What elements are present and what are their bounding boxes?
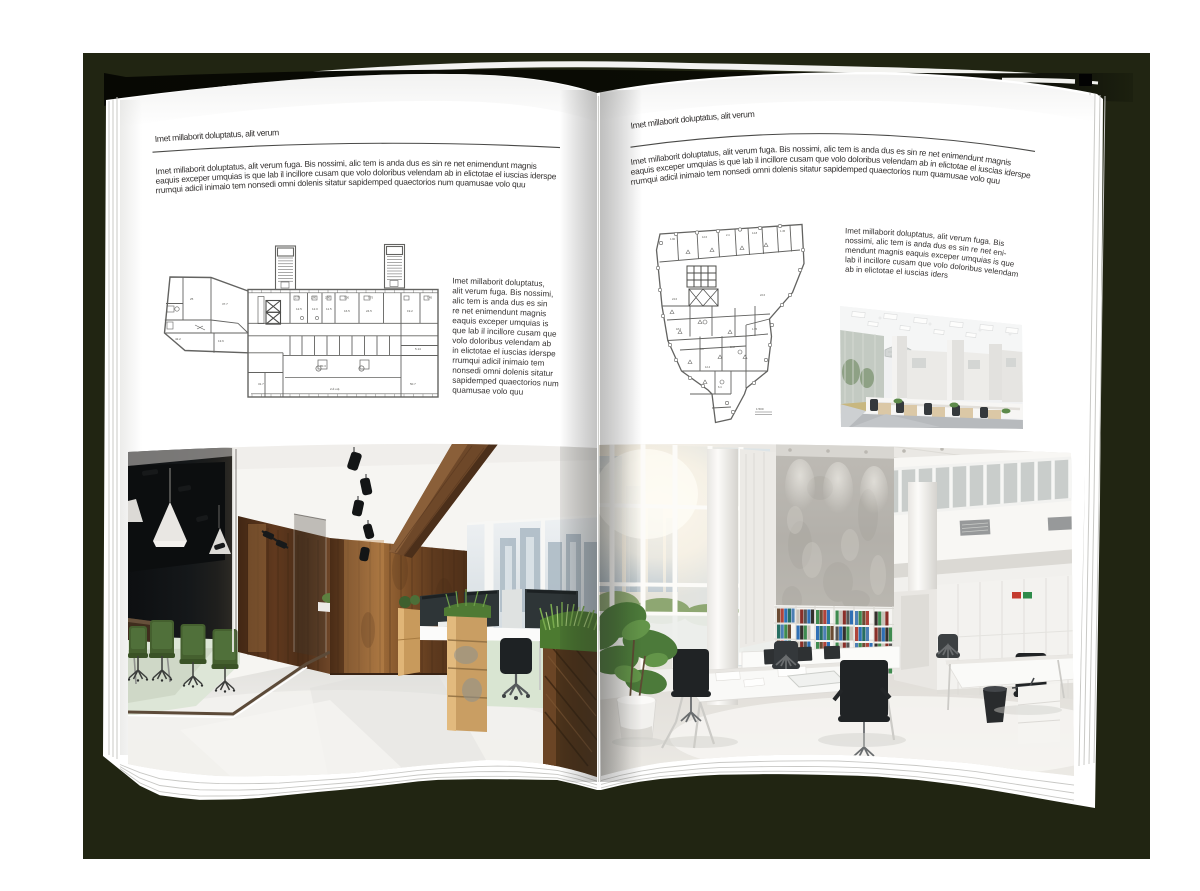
svg-text:12.4: 12.4 (705, 365, 711, 369)
svg-text:1.35: 1.35 (752, 327, 758, 331)
svg-text:18.2: 18.2 (676, 327, 682, 331)
svg-text:12.0: 12.0 (312, 307, 318, 311)
svg-text:1.45: 1.45 (780, 229, 786, 233)
svg-text:24.5: 24.5 (366, 309, 372, 313)
svg-text:1.45: 1.45 (427, 296, 433, 300)
svg-text:1:500: 1:500 (756, 407, 764, 411)
svg-text:25: 25 (190, 297, 194, 301)
svg-text:2-й оф: 2-й оф (330, 387, 340, 391)
svg-text:2.90: 2.90 (325, 296, 331, 300)
svg-text:37.7: 37.7 (222, 302, 228, 306)
svg-text:2.80: 2.80 (311, 296, 317, 300)
svg-text:11.2: 11.2 (730, 345, 735, 349)
svg-text:13.6: 13.6 (218, 339, 224, 343)
svg-text:5.14: 5.14 (415, 347, 421, 351)
svg-text:50.7: 50.7 (410, 382, 416, 386)
svg-text:8.6: 8.6 (700, 347, 704, 351)
svg-text:14.8: 14.8 (752, 231, 758, 235)
svg-text:11.5: 11.5 (326, 307, 332, 311)
svg-text:22.6: 22.6 (760, 293, 766, 297)
svg-text:19.2: 19.2 (407, 309, 413, 313)
svg-text:2.4: 2.4 (726, 233, 730, 237)
svg-text:12.5: 12.5 (296, 307, 302, 311)
svg-text:5.75: 5.75 (368, 296, 374, 300)
svg-text:12.6: 12.6 (702, 235, 708, 239)
svg-text:6.4: 6.4 (718, 385, 722, 389)
svg-text:1.90: 1.90 (670, 237, 676, 241)
svg-text:24.6: 24.6 (672, 297, 678, 301)
svg-text:16.5: 16.5 (344, 309, 350, 313)
svg-text:42.2: 42.2 (175, 337, 181, 341)
svg-text:80.3: 80.3 (320, 364, 326, 368)
svg-text:31.7: 31.7 (258, 382, 264, 386)
svg-text:3.00: 3.00 (344, 296, 350, 300)
svg-text:2.75: 2.75 (295, 296, 301, 300)
